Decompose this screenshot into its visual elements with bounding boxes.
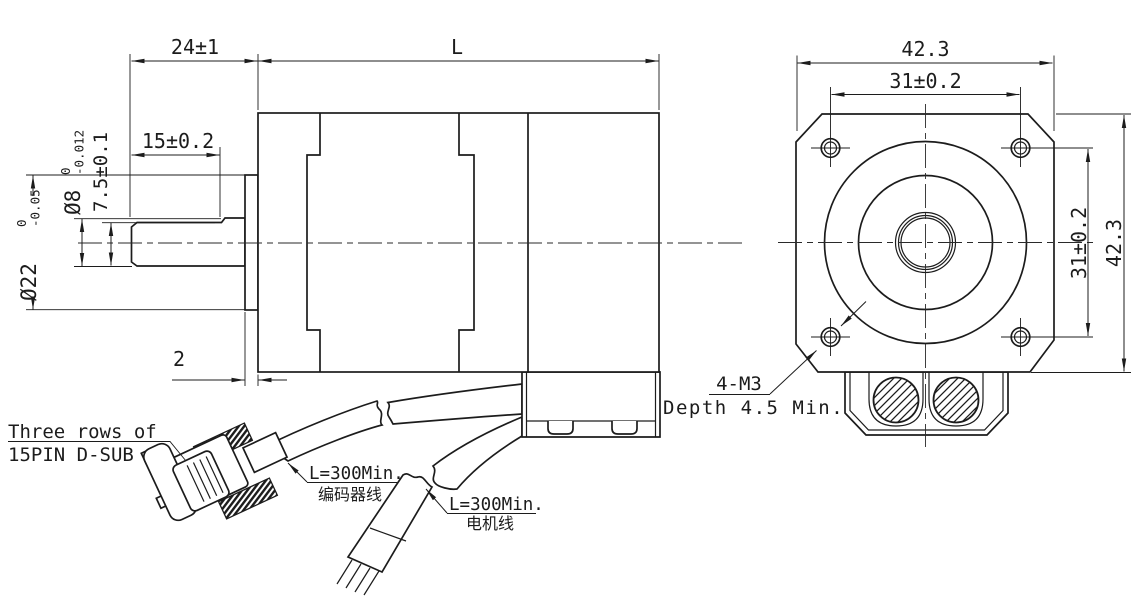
side-housing-grommet	[612, 421, 637, 434]
cable-exit-hatched	[934, 378, 979, 423]
technical-drawing-canvas: 24±1 L 15±0.2 7.5±0.1 Ø8 0 -0.012 Ø22 0 …	[0, 0, 1145, 603]
dim-overall-height-label: 42.3	[1102, 219, 1126, 267]
motor-connector-pin	[346, 564, 361, 588]
shaft-dia-tol-lower: -0.012	[72, 130, 87, 175]
dim-pilot-depth-label: 2	[173, 347, 185, 371]
mounting-note-line1: 4-M3	[716, 373, 762, 395]
mounting-note-leader	[770, 351, 817, 395]
dim-hole-spacing-top-label: 31±0.2	[889, 69, 961, 93]
motor-label-leader	[426, 489, 447, 513]
cable-exit-hatched	[874, 378, 919, 423]
front-view	[778, 87, 1097, 447]
pilot-dia-label: Ø22	[17, 263, 41, 301]
dsub-label-line2: 15PIN D-SUB	[8, 444, 134, 466]
pilot-boss	[245, 175, 258, 310]
side-housing-grommet	[548, 421, 573, 434]
motor-outline-drawing: 24±1 L 15±0.2 7.5±0.1 Ø8 0 -0.012 Ø22 0 …	[0, 0, 1145, 603]
encoder-cable-label-line1: L=300Min.	[309, 464, 404, 484]
encoder-cable-label-line2: 编码器线	[318, 485, 382, 504]
motor-connector-pin	[337, 560, 352, 584]
pilot-dia-tol-lower: -0.05	[28, 189, 43, 227]
encoder-label-leader	[288, 463, 307, 482]
dim-hole-spacing-right-label: 31±0.2	[1067, 207, 1091, 279]
dim-shaft-section-label: 24±1	[171, 35, 219, 59]
dsub-connector	[141, 423, 287, 523]
dim-overall-width-label: 42.3	[901, 37, 949, 61]
dim-flat-height-label: 7.5±0.1	[90, 132, 112, 212]
encoder-cable-segment-a	[388, 384, 522, 424]
shaft-dia-label: Ø8	[61, 190, 85, 215]
dim-body-length-label: L	[451, 35, 463, 59]
motor-cable-label-line1: L=300Min.	[449, 495, 544, 515]
motor-cable-label-line2: 电机线	[466, 514, 514, 533]
mounting-note-line2: Depth 4.5 Min.	[663, 397, 844, 419]
motor-shaft	[132, 218, 246, 266]
dsub-label-line1: Three rows of	[8, 421, 157, 443]
side-housing	[522, 372, 660, 437]
motor-cable-segment	[433, 417, 522, 489]
dim-flat-length-label: 15±0.2	[142, 129, 214, 153]
side-view	[78, 113, 746, 437]
